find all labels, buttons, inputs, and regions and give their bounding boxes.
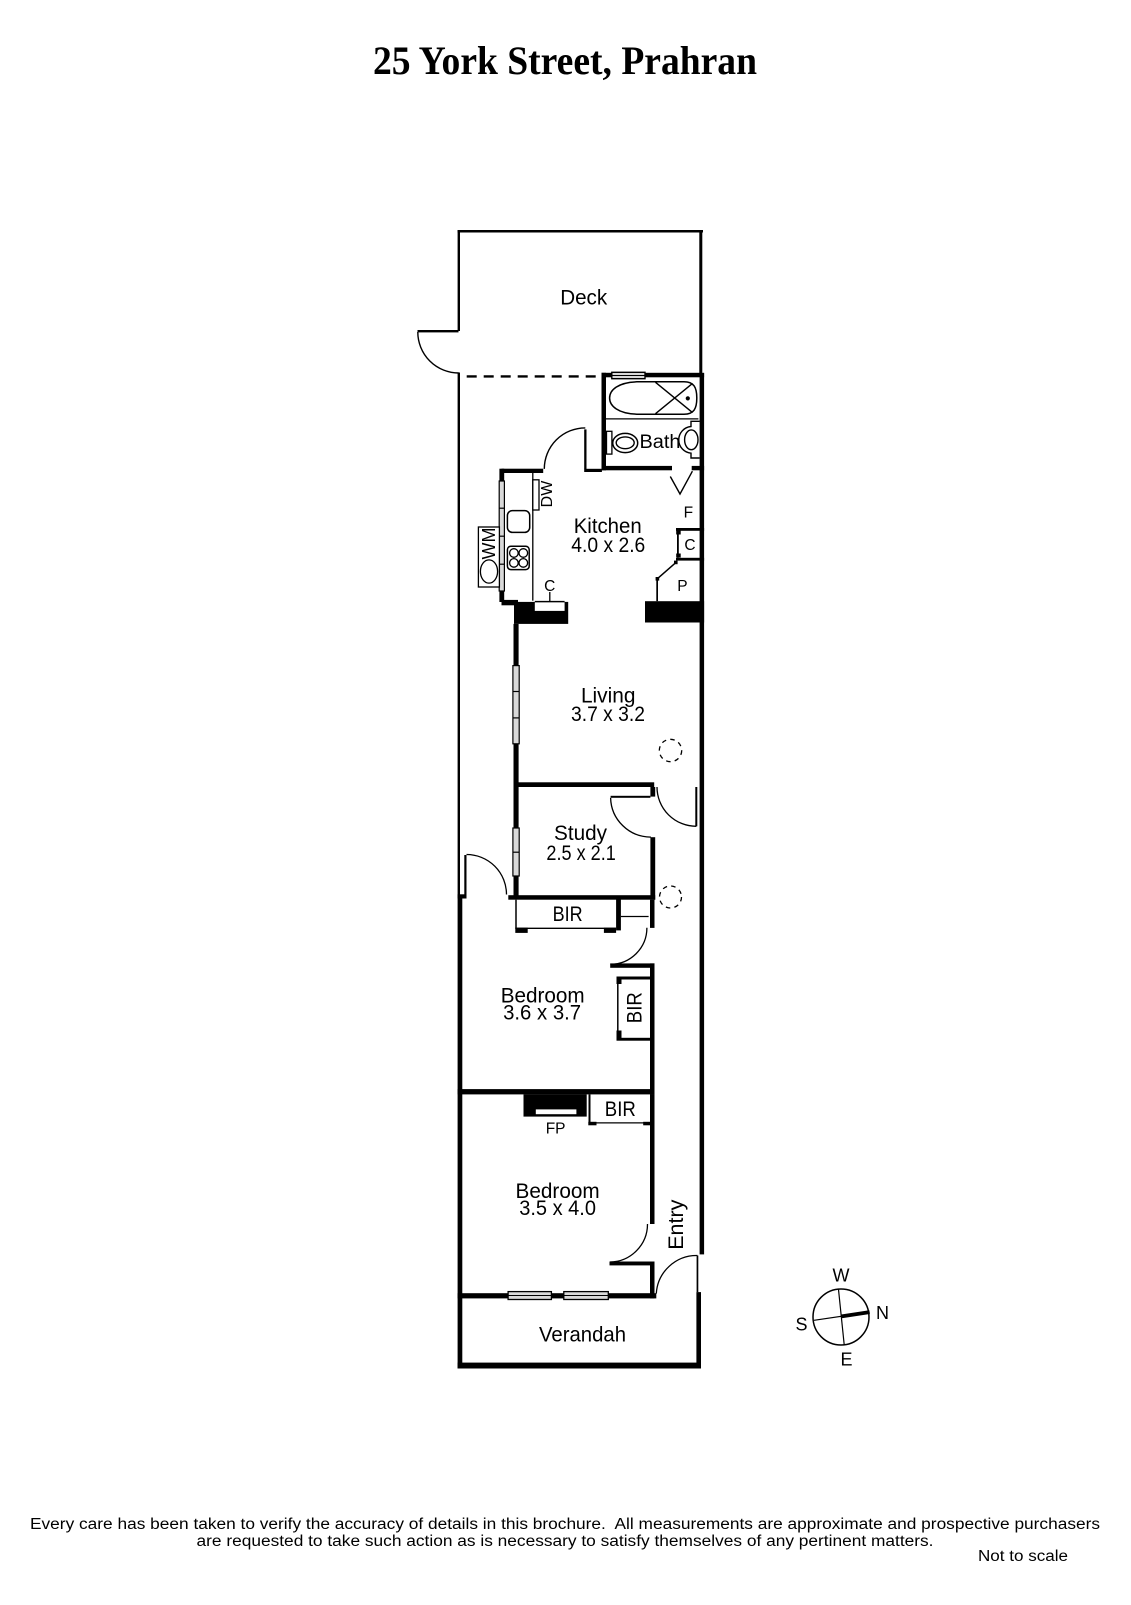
svg-text:2.5 x 2.1: 2.5 x 2.1 bbox=[546, 841, 615, 865]
svg-text:DW: DW bbox=[539, 480, 556, 508]
svg-text:S: S bbox=[795, 1315, 807, 1335]
svg-text:Bath: Bath bbox=[640, 432, 681, 453]
svg-text:BIR: BIR bbox=[605, 1097, 636, 1121]
svg-text:P: P bbox=[677, 578, 687, 595]
svg-text:C: C bbox=[684, 537, 695, 554]
svg-text:F: F bbox=[684, 504, 693, 521]
svg-text:WM: WM bbox=[479, 528, 499, 560]
svg-text:N: N bbox=[876, 1303, 889, 1323]
svg-text:W: W bbox=[833, 1266, 850, 1286]
svg-text:are requested to take such act: are requested to take such action as is … bbox=[197, 1533, 934, 1550]
svg-text:BIR: BIR bbox=[553, 902, 583, 926]
svg-text:Entry: Entry bbox=[664, 1199, 688, 1249]
svg-text:Every care has been taken to v: Every care has been taken to verify the … bbox=[30, 1516, 1100, 1533]
svg-text:4.0 x 2.6: 4.0 x 2.6 bbox=[571, 533, 645, 557]
svg-text:Deck: Deck bbox=[560, 286, 607, 310]
svg-text:Not to scale: Not to scale bbox=[978, 1548, 1068, 1565]
svg-text:Verandah: Verandah bbox=[539, 1322, 626, 1346]
svg-text:3.6 x 3.7: 3.6 x 3.7 bbox=[503, 1001, 581, 1025]
svg-text:25 York Street, Prahran: 25 York Street, Prahran bbox=[373, 38, 757, 83]
svg-text:FP: FP bbox=[546, 1120, 566, 1137]
svg-text:3.7 x 3.2: 3.7 x 3.2 bbox=[571, 702, 645, 726]
svg-text:BIR: BIR bbox=[623, 992, 647, 1023]
svg-text:3.5 x 4.0: 3.5 x 4.0 bbox=[519, 1196, 596, 1220]
svg-text:E: E bbox=[840, 1350, 852, 1370]
